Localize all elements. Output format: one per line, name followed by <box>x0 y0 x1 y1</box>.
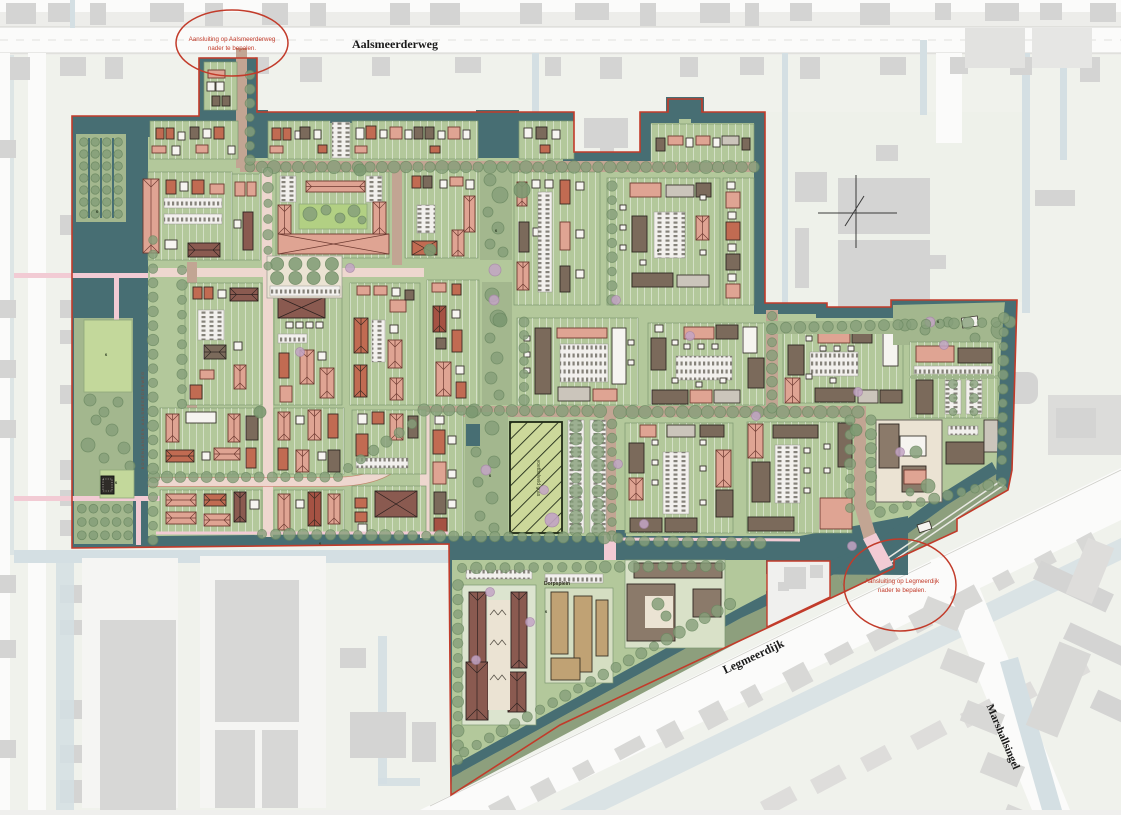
svg-text:Aansluiting op Aalsmeerderweg: Aansluiting op Aalsmeerderweg <box>189 36 276 43</box>
svg-text:nader te bepalen.: nader te bepalen. <box>208 45 256 52</box>
svg-text:Dorpsplein: Dorpsplein <box>544 581 570 587</box>
svg-text:Aansluiting op Legmeerdijk: Aansluiting op Legmeerdijk <box>865 578 940 585</box>
svg-text:Aalsmeerderweg: Aalsmeerderweg <box>352 37 438 51</box>
svg-text:BOVENLANDEN AALSMEERDERWEG: BOVENLANDEN AALSMEERDERWEG <box>141 371 145 469</box>
svg-text:nader te bepalen.: nader te bepalen. <box>878 587 926 594</box>
